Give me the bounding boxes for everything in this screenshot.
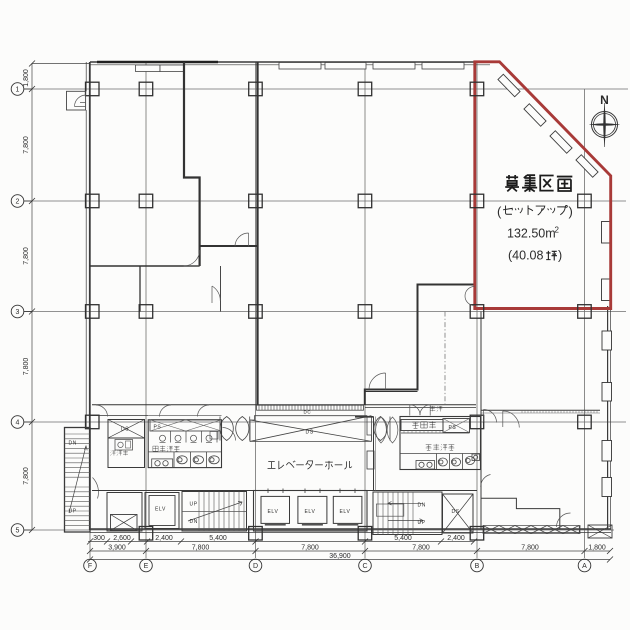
svg-text:7,800: 7,800 — [23, 467, 30, 485]
svg-text:2,400: 2,400 — [155, 535, 173, 542]
svg-text:2,400: 2,400 — [447, 535, 465, 542]
svg-text:ELV: ELV — [340, 509, 351, 515]
svg-text:5,400: 5,400 — [394, 535, 412, 542]
svg-text:DS: DS — [452, 509, 460, 515]
svg-text:7,800: 7,800 — [23, 358, 30, 376]
svg-text:C: C — [362, 563, 367, 570]
svg-text:PS: PS — [449, 425, 457, 431]
svg-text:3,900: 3,900 — [108, 545, 126, 552]
svg-text:DC: DC — [304, 410, 312, 415]
svg-text:36,900: 36,900 — [329, 553, 351, 560]
svg-text:2: 2 — [555, 226, 560, 235]
svg-text:2: 2 — [16, 199, 20, 206]
svg-text:7,800: 7,800 — [301, 545, 319, 552]
svg-text:1,800: 1,800 — [588, 545, 606, 552]
svg-text:7,800: 7,800 — [192, 545, 210, 552]
svg-text:2,600: 2,600 — [113, 535, 131, 542]
svg-text:UP: UP — [418, 520, 426, 526]
svg-text:7,800: 7,800 — [521, 545, 539, 552]
svg-text:): ) — [569, 204, 573, 219]
svg-text:1,800: 1,800 — [23, 69, 30, 87]
svg-text:E: E — [144, 563, 149, 570]
svg-text:DN: DN — [418, 503, 426, 509]
svg-text:UP: UP — [69, 509, 77, 515]
svg-text:132.50m: 132.50m — [507, 227, 556, 241]
svg-text:DN: DN — [190, 519, 198, 525]
svg-text:(: ( — [497, 204, 502, 219]
svg-text:): ) — [558, 249, 562, 263]
svg-text:5: 5 — [16, 528, 20, 535]
svg-text:7,800: 7,800 — [23, 247, 30, 265]
svg-text:5,400: 5,400 — [209, 535, 227, 542]
svg-text:1: 1 — [16, 87, 20, 94]
svg-text:DS: DS — [306, 430, 314, 436]
svg-text:N: N — [600, 93, 609, 107]
svg-text:300: 300 — [93, 535, 105, 542]
svg-text:PS: PS — [154, 425, 162, 431]
svg-text:7,800: 7,800 — [412, 545, 430, 552]
svg-text:F: F — [88, 563, 92, 570]
svg-text:B: B — [475, 563, 480, 570]
svg-text:DS: DS — [121, 427, 129, 433]
svg-text:A: A — [582, 563, 587, 570]
svg-text:UP: UP — [190, 502, 198, 508]
svg-text:(40.08: (40.08 — [508, 249, 543, 263]
svg-text:D: D — [253, 563, 258, 570]
svg-text:4: 4 — [16, 420, 20, 427]
svg-text:ELV: ELV — [268, 509, 279, 515]
svg-text:ELV: ELV — [155, 507, 166, 513]
svg-text:7,800: 7,800 — [23, 136, 30, 154]
svg-text:3: 3 — [16, 309, 20, 316]
svg-text:ELV: ELV — [305, 509, 316, 515]
svg-text:DN: DN — [69, 441, 77, 447]
